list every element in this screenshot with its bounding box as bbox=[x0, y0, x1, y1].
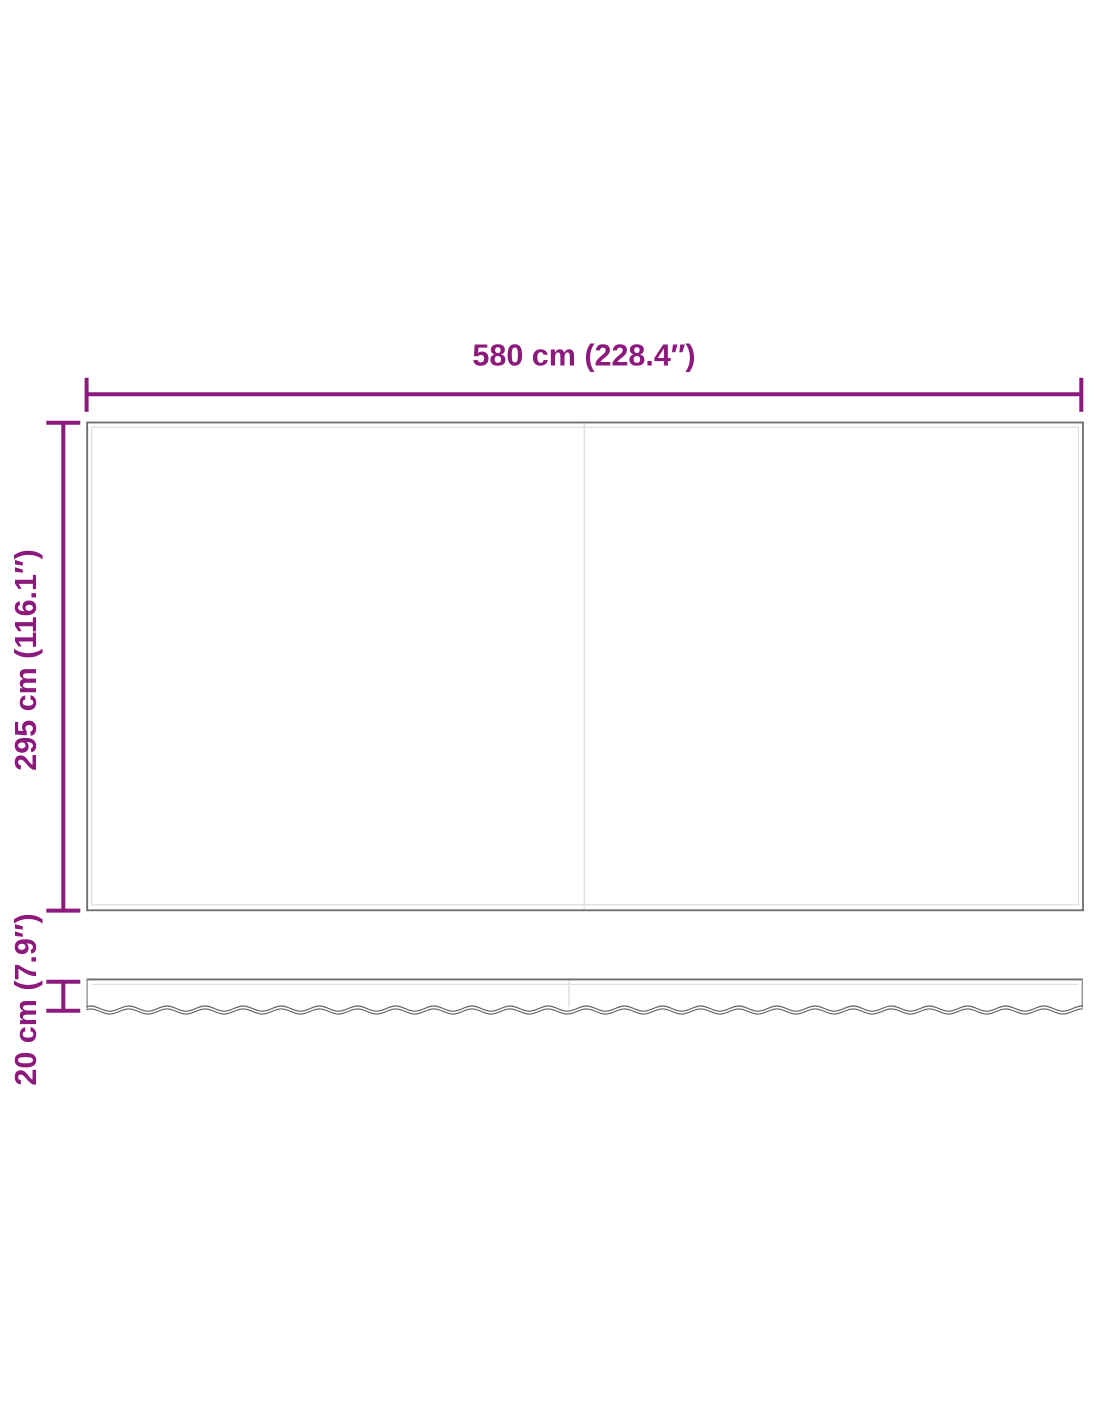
svg-text:580 cm (228.4″): 580 cm (228.4″) bbox=[472, 339, 695, 373]
svg-text:20 cm (7.9″): 20 cm (7.9″) bbox=[9, 913, 43, 1085]
svg-text:295 cm (116.1″): 295 cm (116.1″) bbox=[9, 549, 43, 770]
